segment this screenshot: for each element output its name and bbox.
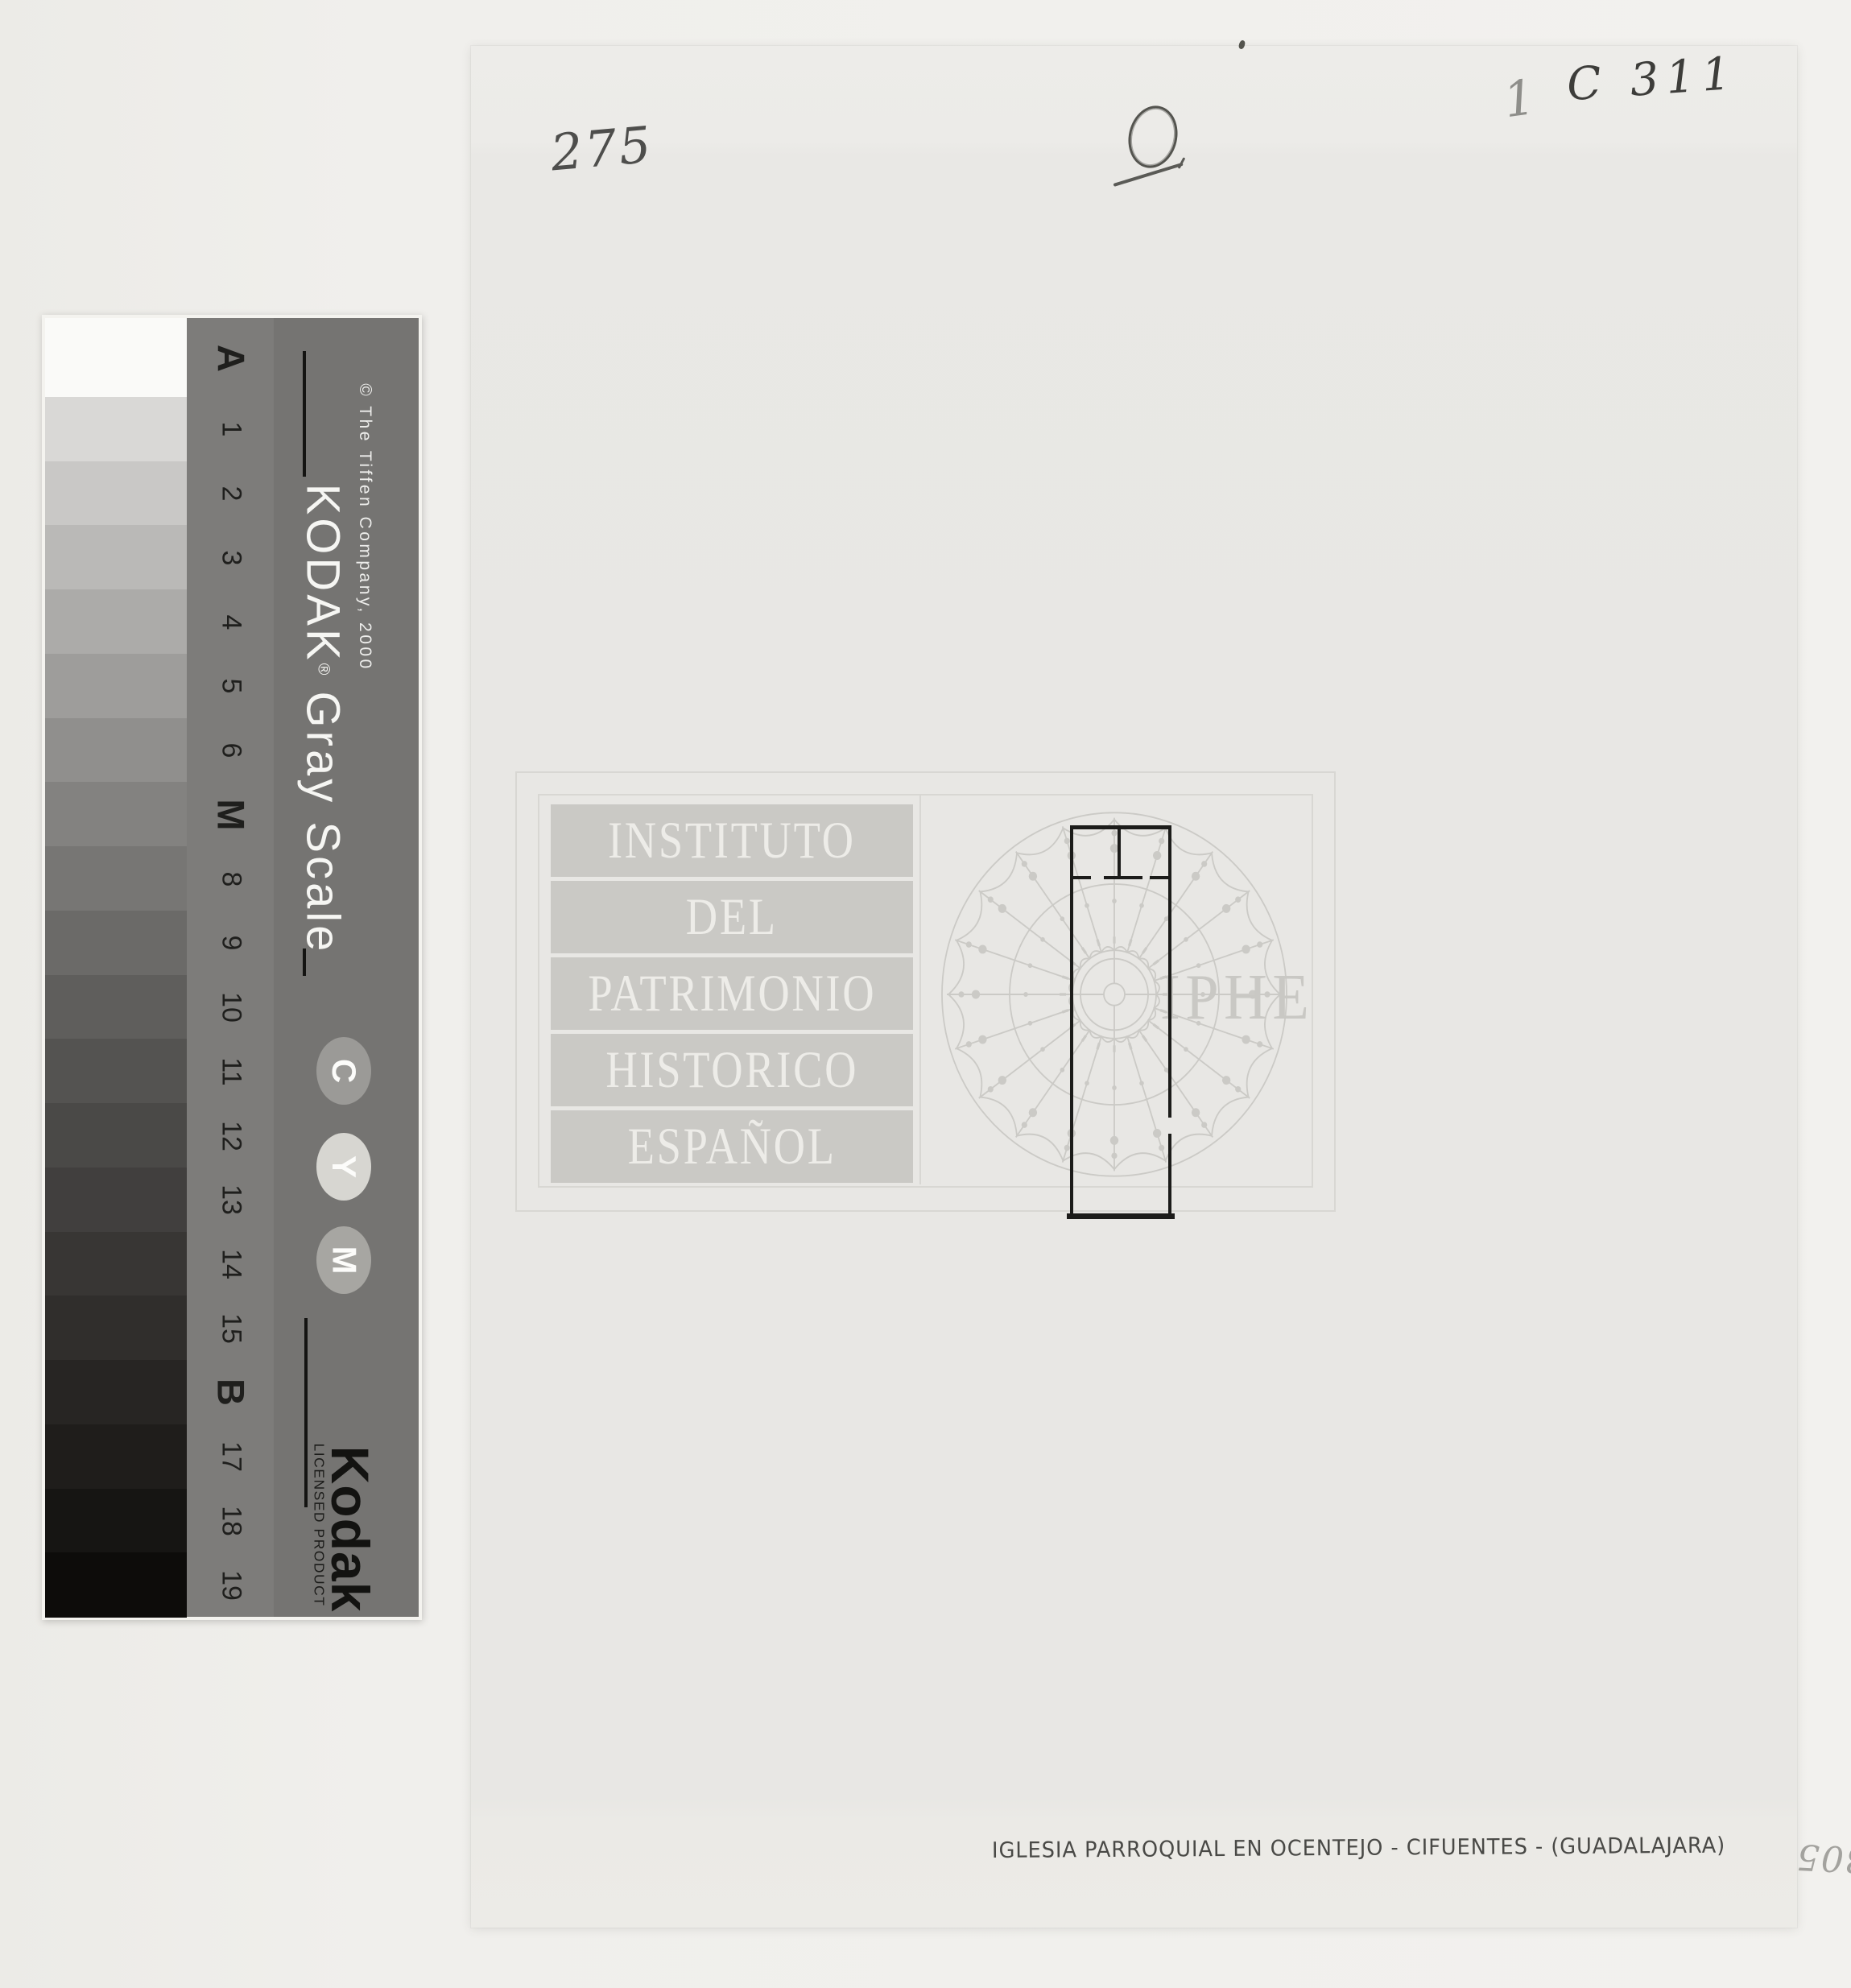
step-label: B xyxy=(209,1378,254,1406)
step-label: 6 xyxy=(216,743,247,758)
card-title: KODAK® Gray Scale xyxy=(296,484,350,955)
watermark-bar-text: INSTITUTO xyxy=(608,811,856,870)
gray-patch xyxy=(45,718,187,783)
step-label: 11 xyxy=(216,1057,247,1085)
step-label: 3 xyxy=(216,550,247,565)
caption-title: IGLESIA PARROQUIAL EN OCENTEJO - CIFUENT… xyxy=(992,1833,1725,1863)
step-label: 17 xyxy=(216,1441,247,1472)
watermark-bar-text: PATRIMONIO xyxy=(588,964,876,1023)
scanned-document: INSTITUTODELPATRIMONIOHISTORICOESPAÑOL I… xyxy=(0,0,1851,1988)
gray-patch xyxy=(45,1296,187,1361)
gray-patch xyxy=(45,1552,187,1618)
gray-patch xyxy=(45,397,187,462)
watermark-bar: ESPAÑOL xyxy=(551,1110,913,1183)
cym-oval-m: M xyxy=(316,1226,371,1294)
plan-dashed-wall-seg xyxy=(1150,876,1171,879)
step-label: A xyxy=(209,345,254,372)
plan-interior-divider xyxy=(1118,825,1121,879)
watermark-bar-text: DEL xyxy=(686,887,778,947)
step-label: M xyxy=(209,799,254,830)
gray-patch xyxy=(45,525,187,590)
watermark-bar-text: ESPAÑOL xyxy=(627,1117,836,1176)
gray-patch xyxy=(45,654,187,719)
gray-patch xyxy=(45,1489,187,1554)
inventory-number: 275 xyxy=(548,115,655,183)
cym-oval-y: Y xyxy=(316,1133,371,1201)
step-label: 14 xyxy=(216,1249,247,1279)
plan-top-wall xyxy=(1070,825,1171,829)
cym-letter: C xyxy=(324,1059,363,1083)
watermark-bar: PATRIMONIO xyxy=(551,957,913,1030)
gray-patch xyxy=(45,975,187,1040)
cym-letter: Y xyxy=(324,1155,363,1178)
licensed-product-label: LICENSED PRODUCT xyxy=(311,1444,328,1607)
card-rule-top xyxy=(303,351,306,477)
plan-bottom-wall xyxy=(1067,1213,1175,1219)
step-label: 8 xyxy=(216,871,247,887)
step-label: 4 xyxy=(216,614,247,630)
watermark-bar: DEL xyxy=(551,881,913,953)
step-label: 15 xyxy=(216,1313,247,1344)
gray-patch xyxy=(45,318,187,398)
watermark-bar: HISTORICO xyxy=(551,1034,913,1106)
gray-patch xyxy=(45,1424,187,1490)
iphe-acronym: IPHE xyxy=(1160,961,1314,1035)
plan-right-wall-upper xyxy=(1168,825,1171,1118)
gray-patch xyxy=(45,589,187,655)
gray-patch xyxy=(45,1039,187,1104)
watermark-panel-divider xyxy=(919,796,921,1184)
step-label: 5 xyxy=(216,679,247,694)
gray-patch xyxy=(45,782,187,847)
gray-patch xyxy=(45,846,187,911)
step-label: 13 xyxy=(216,1184,247,1215)
watermark-bar-text: HISTORICO xyxy=(605,1040,858,1100)
card-title-brand: KODAK xyxy=(297,484,349,663)
gray-patch xyxy=(45,1232,187,1297)
cym-oval-c: C xyxy=(316,1037,371,1105)
gray-patch xyxy=(45,461,187,527)
gray-patch xyxy=(45,1168,187,1233)
card-title-rest: Gray Scale xyxy=(297,692,349,955)
plan-dashed-wall-seg xyxy=(1104,876,1142,879)
watermark-bar: INSTITUTO xyxy=(551,804,913,877)
step-label: 12 xyxy=(216,1121,247,1151)
plan-dashed-wall-seg xyxy=(1070,876,1091,879)
step-label: 10 xyxy=(216,992,247,1023)
step-label: 9 xyxy=(216,936,247,951)
registered-mark-icon: ® xyxy=(315,663,333,676)
step-label: 2 xyxy=(216,486,247,502)
inverted-number: 305 xyxy=(1795,1836,1851,1881)
kodak-logo: Kodak xyxy=(320,1446,381,1613)
plan-left-wall xyxy=(1070,825,1073,1217)
cym-letter: M xyxy=(324,1246,363,1275)
gray-patch xyxy=(45,1360,187,1425)
step-label: 18 xyxy=(216,1506,247,1536)
step-label: 1 xyxy=(216,422,247,437)
plan-right-wall-lower xyxy=(1168,1134,1171,1217)
card-copyright: © The Tiffen Company, 2000 xyxy=(355,383,374,671)
step-label: 19 xyxy=(216,1570,247,1601)
card-rule-bottom xyxy=(304,1318,308,1507)
step-label-band xyxy=(187,318,274,1617)
gray-patch xyxy=(45,1103,187,1168)
gray-patch xyxy=(45,911,187,976)
